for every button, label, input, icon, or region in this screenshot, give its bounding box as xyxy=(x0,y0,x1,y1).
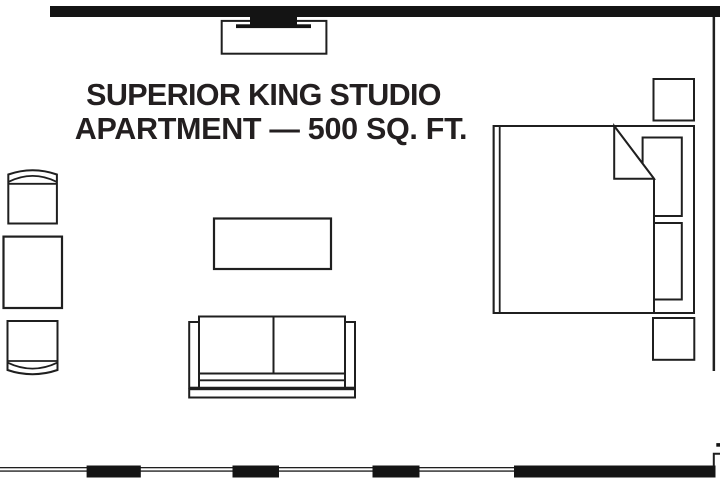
svg-text:SUPERIOR KING STUDIO: SUPERIOR KING STUDIO xyxy=(86,78,441,112)
svg-text:APARTMENT — 500 SQ. FT.: APARTMENT — 500 SQ. FT. xyxy=(75,112,467,146)
